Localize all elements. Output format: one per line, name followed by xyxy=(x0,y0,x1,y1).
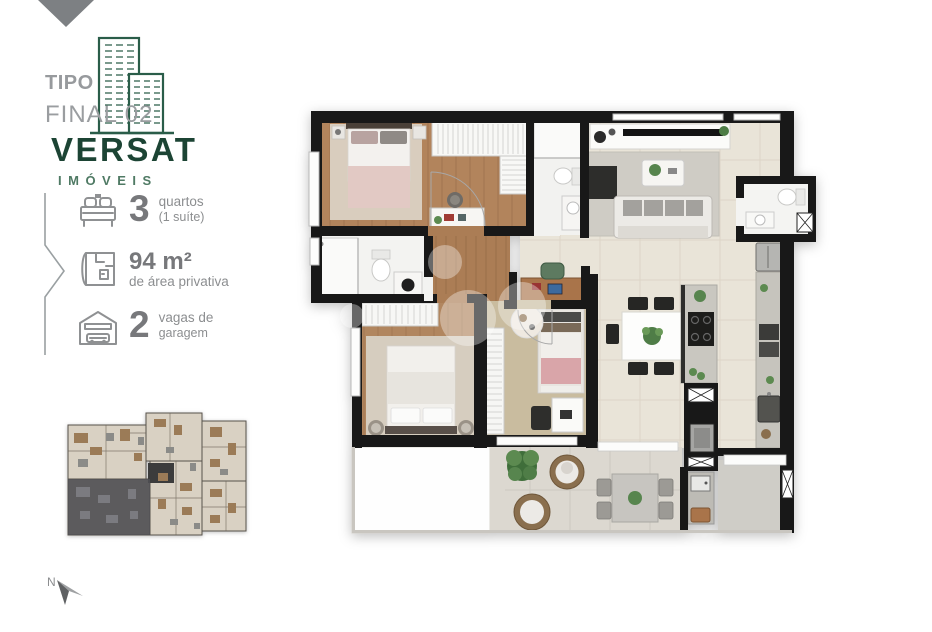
brand-name: VERSAT xyxy=(51,131,197,169)
bedrooms-label: quartos xyxy=(159,194,205,210)
unit-type-label: TIPO xyxy=(45,72,94,95)
bedrooms-count: 3 xyxy=(129,191,150,226)
feature-parking: 2 vagas de garagem xyxy=(76,307,213,347)
unit-final-label: FINAL 02 xyxy=(45,101,154,129)
flyer-page: { "logo": { "tipo": "TIPO", "final": "FI… xyxy=(0,0,932,632)
private-area-label: de área privativa xyxy=(129,274,229,290)
garage-icon xyxy=(76,307,120,347)
balcony-railing-left xyxy=(352,447,355,533)
north-arrow: N xyxy=(44,564,92,612)
living-room-furniture xyxy=(589,124,730,238)
floorplan-icon xyxy=(76,249,120,289)
feature-private-area: 94 m² de área privativa xyxy=(76,249,229,290)
bedrooms-sublabel: (1 suíte) xyxy=(159,210,205,225)
floor-plan-rendering xyxy=(305,78,835,548)
north-label: N xyxy=(47,575,56,589)
bed-icon xyxy=(76,191,120,231)
parking-count: 2 xyxy=(129,307,150,342)
brand-subtitle: IMÓVEIS xyxy=(58,173,158,188)
parking-sublabel: garagem xyxy=(159,326,214,341)
terrace-floor xyxy=(352,447,490,533)
balcony-railing-bottom xyxy=(352,530,792,533)
parking-label: vagas de xyxy=(159,310,214,326)
private-area-value: 94 m² xyxy=(129,249,229,274)
key-plan-thumbnail xyxy=(50,403,255,543)
feature-bedrooms: 3 quartos (1 suíte) xyxy=(76,191,204,231)
gourmet-balcony-floor xyxy=(718,460,790,533)
corner-ribbon xyxy=(38,0,94,27)
bracket-line xyxy=(43,192,67,356)
